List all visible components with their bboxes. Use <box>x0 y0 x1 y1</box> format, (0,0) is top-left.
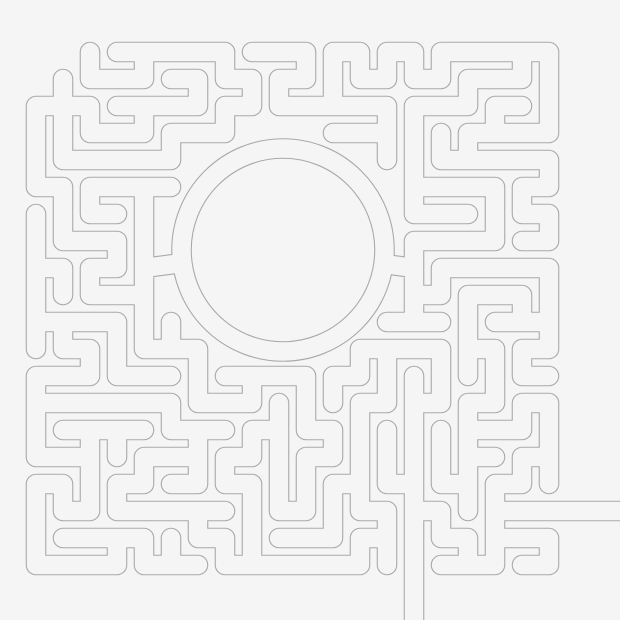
maze-drawing <box>0 0 620 620</box>
maze-page <box>0 0 620 620</box>
